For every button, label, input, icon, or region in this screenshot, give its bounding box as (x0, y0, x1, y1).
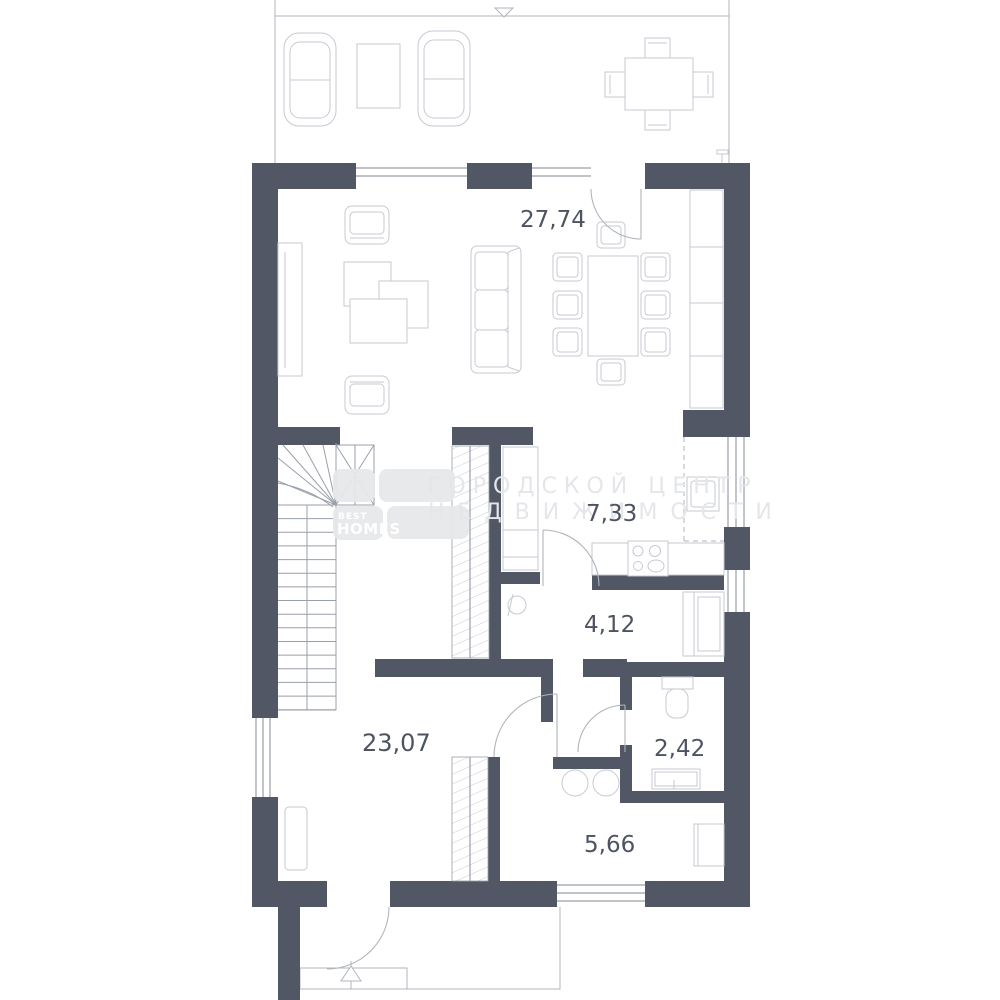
hallway-wardrobe (683, 592, 724, 656)
shower-icon (694, 824, 724, 866)
terrace (275, 0, 729, 163)
terrace-coffee-table (357, 44, 400, 108)
vent-marker-icon (717, 150, 728, 163)
dining-table-chairs (553, 222, 670, 385)
label-kitchen-area: 7,33 (586, 501, 637, 527)
logo-homes-text: HOMES (337, 520, 401, 538)
basin-right-icon (593, 770, 619, 796)
terrace-armchair-right (418, 31, 470, 126)
armchair-bottom (345, 376, 389, 414)
door-terrace (591, 189, 641, 239)
label-bathroom-area: 5,66 (584, 832, 635, 858)
radiator (285, 807, 307, 870)
label-hall-area: 23,07 (362, 729, 431, 757)
watermark-line1: ГОРОДСКОЙ ЦЕНТР (428, 473, 757, 499)
window-top-right (532, 168, 591, 176)
tall-cabinet (690, 190, 723, 408)
hall-room (285, 757, 488, 881)
window-top-left (356, 168, 467, 176)
living-room (278, 190, 723, 414)
label-living-room-area: 27,74 (520, 207, 586, 233)
wc-sink-icon (652, 769, 700, 789)
label-hallway-area: 4,12 (584, 612, 635, 638)
window-bottom (557, 885, 645, 901)
sofa (471, 246, 521, 373)
floor-plan-page: BEST HOMES ГОРОДСКОЙ ЦЕНТР НЕДВИЖИМОСТИ … (0, 0, 1000, 1000)
window-hallway-right (728, 570, 744, 612)
stove-icon (628, 541, 668, 576)
window-left (256, 718, 270, 797)
terrace-dining-set (605, 38, 713, 130)
watermark: BEST HOMES ГОРОДСКОЙ ЦЕНТР НЕДВИЖИМОСТИ (333, 469, 785, 540)
door-entrance (327, 907, 389, 969)
entrance-porch (300, 907, 560, 989)
armchair-top (345, 206, 389, 244)
basin-left-icon (562, 770, 588, 796)
stair-winders (278, 445, 336, 507)
wc-room (652, 677, 700, 789)
toilet-icon (662, 677, 693, 718)
coffee-tables (344, 262, 428, 343)
tv-panel (278, 243, 302, 376)
floor-plan-svg: BEST HOMES ГОРОДСКОЙ ЦЕНТР НЕДВИЖИМОСТИ … (0, 0, 1000, 1000)
door-kitchen (543, 530, 599, 586)
door-wc (578, 705, 625, 752)
small-sink-icon (508, 594, 526, 616)
label-wc-area: 2,42 (654, 736, 705, 762)
terrace-armchair-left (284, 33, 336, 126)
